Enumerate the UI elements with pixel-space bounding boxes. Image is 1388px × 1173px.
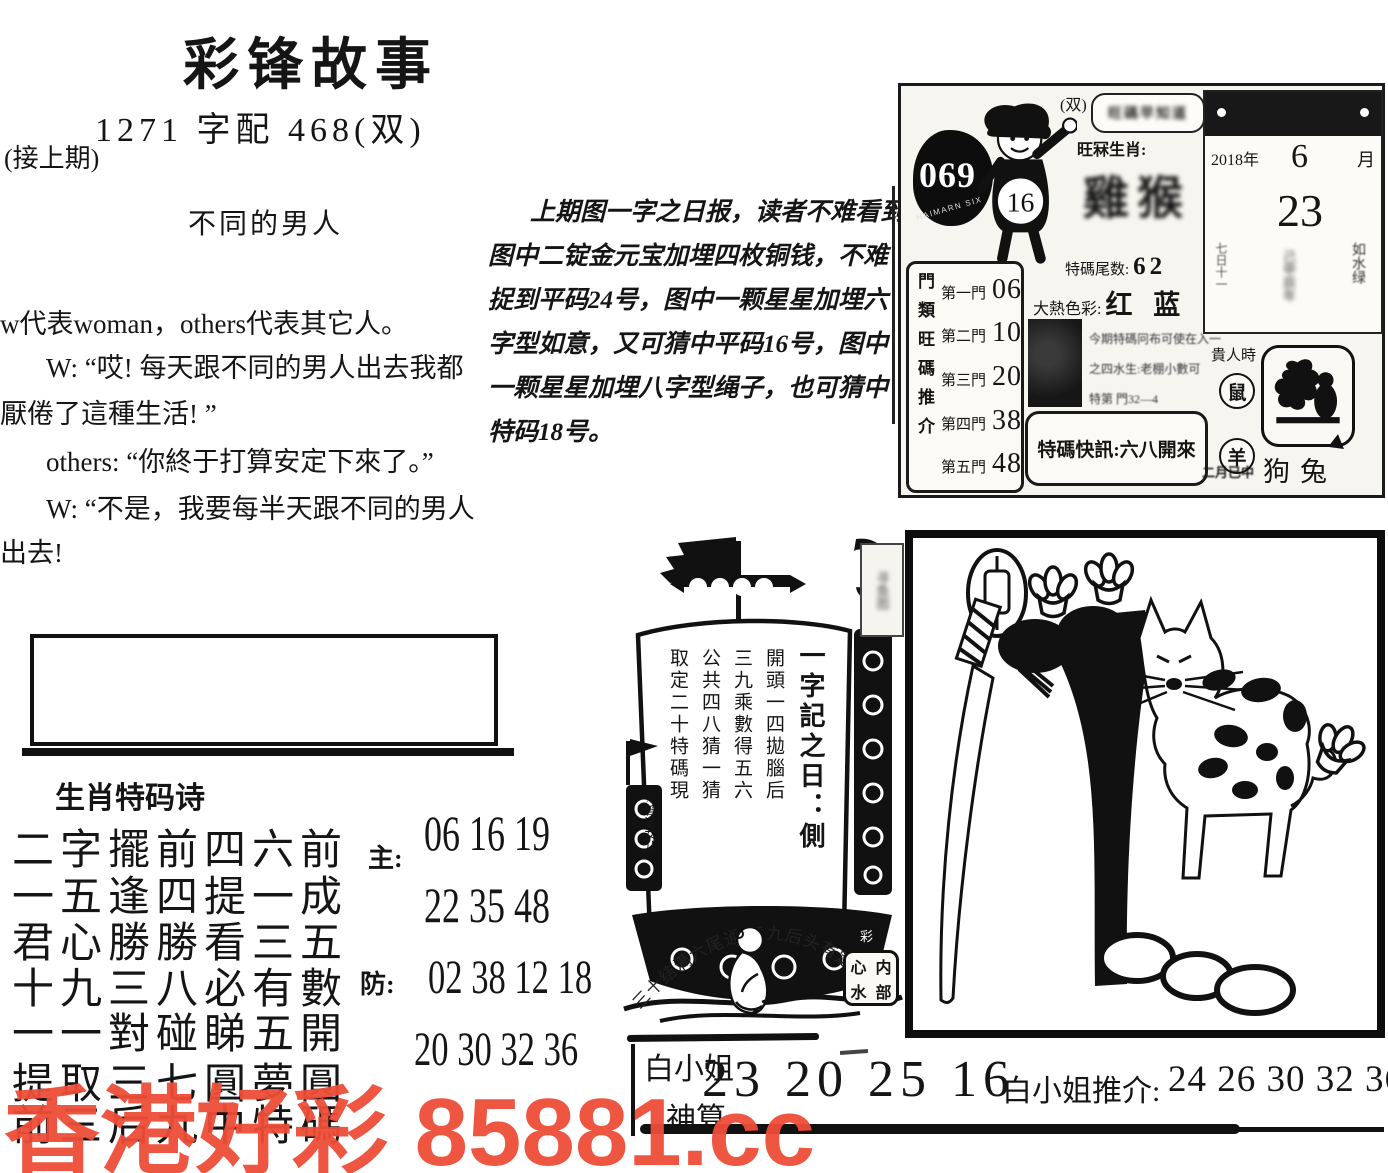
- empty-box-underline: [22, 748, 514, 756]
- calendar-note-left: 七日十一: [1213, 242, 1230, 290]
- watermark: 香港好彩 85881.cc: [4, 1054, 815, 1173]
- seal-char: 水: [850, 979, 866, 1003]
- door-row: 第五門48: [941, 448, 1025, 480]
- hot-label: 大熱色彩:: [1033, 301, 1101, 318]
- calendar-day: 23: [1277, 184, 1323, 237]
- empty-box: [30, 634, 498, 746]
- page-title: 彩锋故事: [183, 20, 439, 101]
- zodiac-label: 旺冧生肖:: [1077, 136, 1146, 160]
- kuaixun-box: 特碼快訊:六八開來: [1025, 411, 1208, 486]
- month-note: 二月已中: [1202, 462, 1254, 481]
- mystery-picture-frame: [905, 530, 1385, 1038]
- door-label: 第一門: [941, 282, 986, 303]
- door-row: 第四門38: [941, 405, 1025, 437]
- issue-line: 1271 字配 468(双): [95, 102, 426, 151]
- door-value: 48: [992, 448, 1022, 480]
- scan-line-artifact: [892, 186, 895, 424]
- tail-number-line: 特碼尾数: 62: [1065, 253, 1166, 281]
- main-label: 主:: [368, 838, 403, 875]
- divider-bar-bottom-thin: [1232, 1127, 1384, 1132]
- guiren-label: 貴人時: [1211, 344, 1256, 365]
- tail-label: 特碼尾数:: [1065, 262, 1129, 278]
- main-numbers: 06 16 19: [424, 804, 550, 862]
- calendar-header: [1205, 92, 1381, 136]
- monkey-figure: [712, 922, 782, 1022]
- tip-line: 字型如意，又可猜中平码16号，图中: [488, 324, 888, 360]
- guard-numbers: 02 38 12 18: [428, 950, 592, 1005]
- tip-line: 特码18号。: [488, 412, 613, 448]
- seal-char: 内: [875, 954, 891, 978]
- lottery-tip-sheet: 彩锋故事 1271 字配 468(双) (接上期) 不同的男人 w代表woman…: [0, 0, 1388, 1173]
- door-value: 38: [992, 405, 1022, 437]
- speech-bubble: 旺碼早知道: [1091, 93, 1205, 133]
- tip-line: 上期图一字之日报，读者不难看到: [530, 192, 905, 228]
- fish-stamp-text: 寻鱼图: [873, 571, 892, 610]
- blurred-note-line: 之四水生:老棚小數可: [1089, 354, 1219, 384]
- cat-drawing: [913, 538, 1377, 1030]
- divider-bar-top: [627, 1033, 819, 1042]
- fish-stamp: 寻鱼图: [860, 543, 904, 637]
- calendar-month: 6: [1291, 138, 1308, 176]
- boy-number: 16: [1007, 188, 1035, 219]
- door-label: 第二門: [941, 325, 986, 346]
- blurred-note: 今期特碼冋布可使在入一 之四水生:老棚小數可 特第 門32—4: [1089, 324, 1219, 414]
- calendar-hole-right: [1360, 108, 1369, 117]
- story-line: others: “你終于打算安定下來了。”: [46, 440, 434, 479]
- tui-label: 白小姐推介:: [1002, 1066, 1160, 1110]
- door-row: 第二門10: [941, 317, 1025, 349]
- continuation-note: (接上期): [4, 138, 99, 175]
- tip-line: 图中二锭金元宝加埋四枚铜钱，不难: [488, 236, 888, 272]
- hot-color-line: 大熱色彩: 红 蓝: [1033, 283, 1187, 322]
- calendar-note-center: 己甲辰年: [1279, 250, 1298, 302]
- door-row: 第三門20: [941, 361, 1025, 393]
- door-label: 第三門: [941, 369, 986, 390]
- tip-line: 捉到平码24号，图中一颗星星加埋六: [488, 280, 888, 316]
- inner-seal: 心 内 水 部: [843, 950, 899, 1006]
- door-value: 20: [992, 361, 1022, 393]
- blurred-note-line: 特第 門32—4: [1089, 384, 1219, 414]
- calendar-hole-left: [1217, 108, 1226, 117]
- story-line: 厭倦了這種生活! ”: [0, 392, 217, 431]
- calendar-year: 2018年: [1211, 146, 1259, 170]
- seal-char: 部: [875, 979, 891, 1003]
- zodiac-stamp: [1261, 345, 1355, 447]
- guard-label: 防:: [360, 964, 395, 1001]
- door-label: 第五門: [941, 456, 986, 477]
- info-box: 069 HAIMARN SIX 16 (双) 旺碼早知道 旺冧生肖: 雞猴 特碼…: [898, 83, 1385, 498]
- story-title: 不同的男人: [188, 202, 343, 242]
- tui-numbers: 24 26 30 32 36: [1168, 1058, 1388, 1101]
- door-strip-label: 門類旺碼推介: [912, 272, 937, 486]
- kuaixun-text: 特碼快訊:六八開來: [1037, 435, 1195, 462]
- door-strip: 門類旺碼推介 第一門06 第二門10 第三門20 第四門38 第五門48: [906, 261, 1024, 493]
- story-line: w代表woman，others代表其它人。: [0, 302, 408, 341]
- hot-value: 红 蓝: [1105, 290, 1187, 320]
- tail-value: 62: [1133, 253, 1166, 280]
- shuang-mark: (双): [1060, 91, 1087, 115]
- bubble-scribble: 旺碼早知道: [1108, 103, 1188, 123]
- boy-cartoon: 16: [971, 98, 1077, 266]
- door-value: 10: [992, 317, 1022, 349]
- story-line: W: “不是，我要每半天跟不同的男人: [46, 487, 475, 526]
- poem-heading: 生肖特码诗: [55, 773, 205, 817]
- seal-char: 心: [850, 954, 866, 978]
- story-line: W: “哎! 每天跟不同的男人出去我都: [46, 346, 463, 385]
- zodiac-scribble: 雞猴: [1083, 162, 1191, 228]
- triangle-mark: [1328, 433, 1346, 449]
- door-row: 第一門06: [941, 274, 1025, 306]
- main-numbers: 22 35 48: [424, 876, 550, 934]
- tip-line: 一颗星星加埋八字型绳子，也可猜中: [488, 368, 888, 404]
- stamp-scribble: [1264, 348, 1352, 444]
- door-value: 06: [992, 274, 1022, 306]
- calendar: 2018年 6 月 23 七日十一 己甲辰年 如水绿: [1203, 90, 1383, 334]
- blurred-note-line: 今期特碼冋布可使在入一: [1089, 324, 1219, 354]
- month-animals: 狗兔: [1263, 450, 1337, 489]
- dark-photo-box: [1028, 319, 1082, 407]
- door-label: 第四門: [941, 413, 986, 434]
- issue-number: 069: [919, 154, 976, 196]
- zodiac-circle-rat: 鼠: [1219, 373, 1255, 409]
- story-line: 出去!: [0, 531, 63, 570]
- rat-char: 鼠: [1227, 378, 1246, 405]
- calendar-note-right: 如水绿: [1347, 242, 1367, 284]
- calendar-month-char: 月: [1357, 146, 1375, 172]
